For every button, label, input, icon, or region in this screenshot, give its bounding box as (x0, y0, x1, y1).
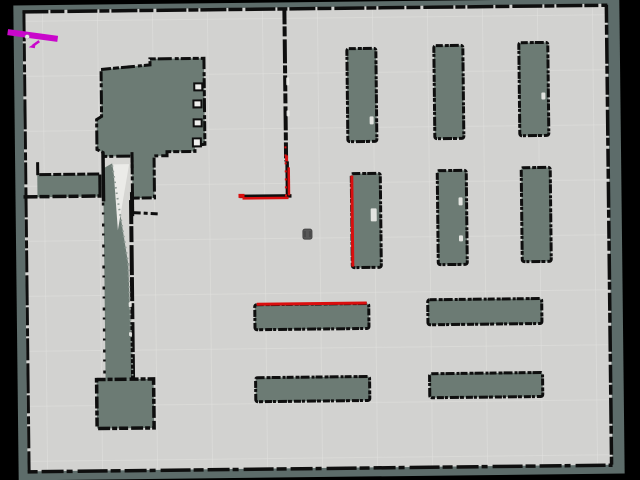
wall-notch (194, 83, 202, 90)
scan-l-wall-horizontal (243, 198, 289, 199)
center-vertical-wall (284, 8, 286, 161)
robot-pose-marker (303, 229, 312, 239)
robot-wheel-left (304, 231, 306, 237)
scan-speck (287, 110, 290, 116)
scan-speck (371, 208, 377, 221)
shelf-mid-3 (521, 167, 551, 261)
shelf-top-2 (434, 45, 464, 138)
scan-speck (370, 116, 374, 124)
rviz-3d-viewport[interactable] (0, 0, 640, 480)
left-strip (37, 174, 101, 197)
extension-bottom-stub (133, 212, 158, 214)
strip-top (39, 174, 101, 175)
robot-wheel-right (309, 231, 311, 237)
map-rotated-group (10, 0, 624, 480)
shelf-top-1 (347, 48, 377, 141)
scan-shelf-mid-1-left (352, 176, 353, 267)
scan-speck (459, 235, 463, 241)
scan-speck (541, 92, 545, 99)
path-start-dot (25, 35, 29, 39)
l-wall-horizontal (240, 196, 292, 197)
shelf-mid-1 (351, 173, 381, 267)
scan-speck (459, 197, 463, 205)
scan-speck (129, 302, 132, 307)
wall-notch (193, 138, 201, 146)
wall-notch (193, 100, 201, 107)
occupancy-grid-map (0, 0, 640, 480)
shelf-row2-right (430, 372, 543, 397)
corridor-left-wall (103, 152, 104, 201)
shelf-row2-left (256, 376, 370, 401)
scan-shelf-row1-top (257, 303, 367, 304)
shelf-top-3 (519, 42, 549, 135)
scan-speck (286, 77, 289, 85)
bottom-left-block (97, 379, 155, 429)
wall-notch (194, 119, 202, 126)
shelf-mid-2 (437, 170, 467, 264)
strip-bottom (23, 196, 101, 197)
shelf-row1-right (428, 298, 542, 324)
shelf-row1-left (255, 303, 369, 329)
scan-speck (129, 332, 132, 336)
